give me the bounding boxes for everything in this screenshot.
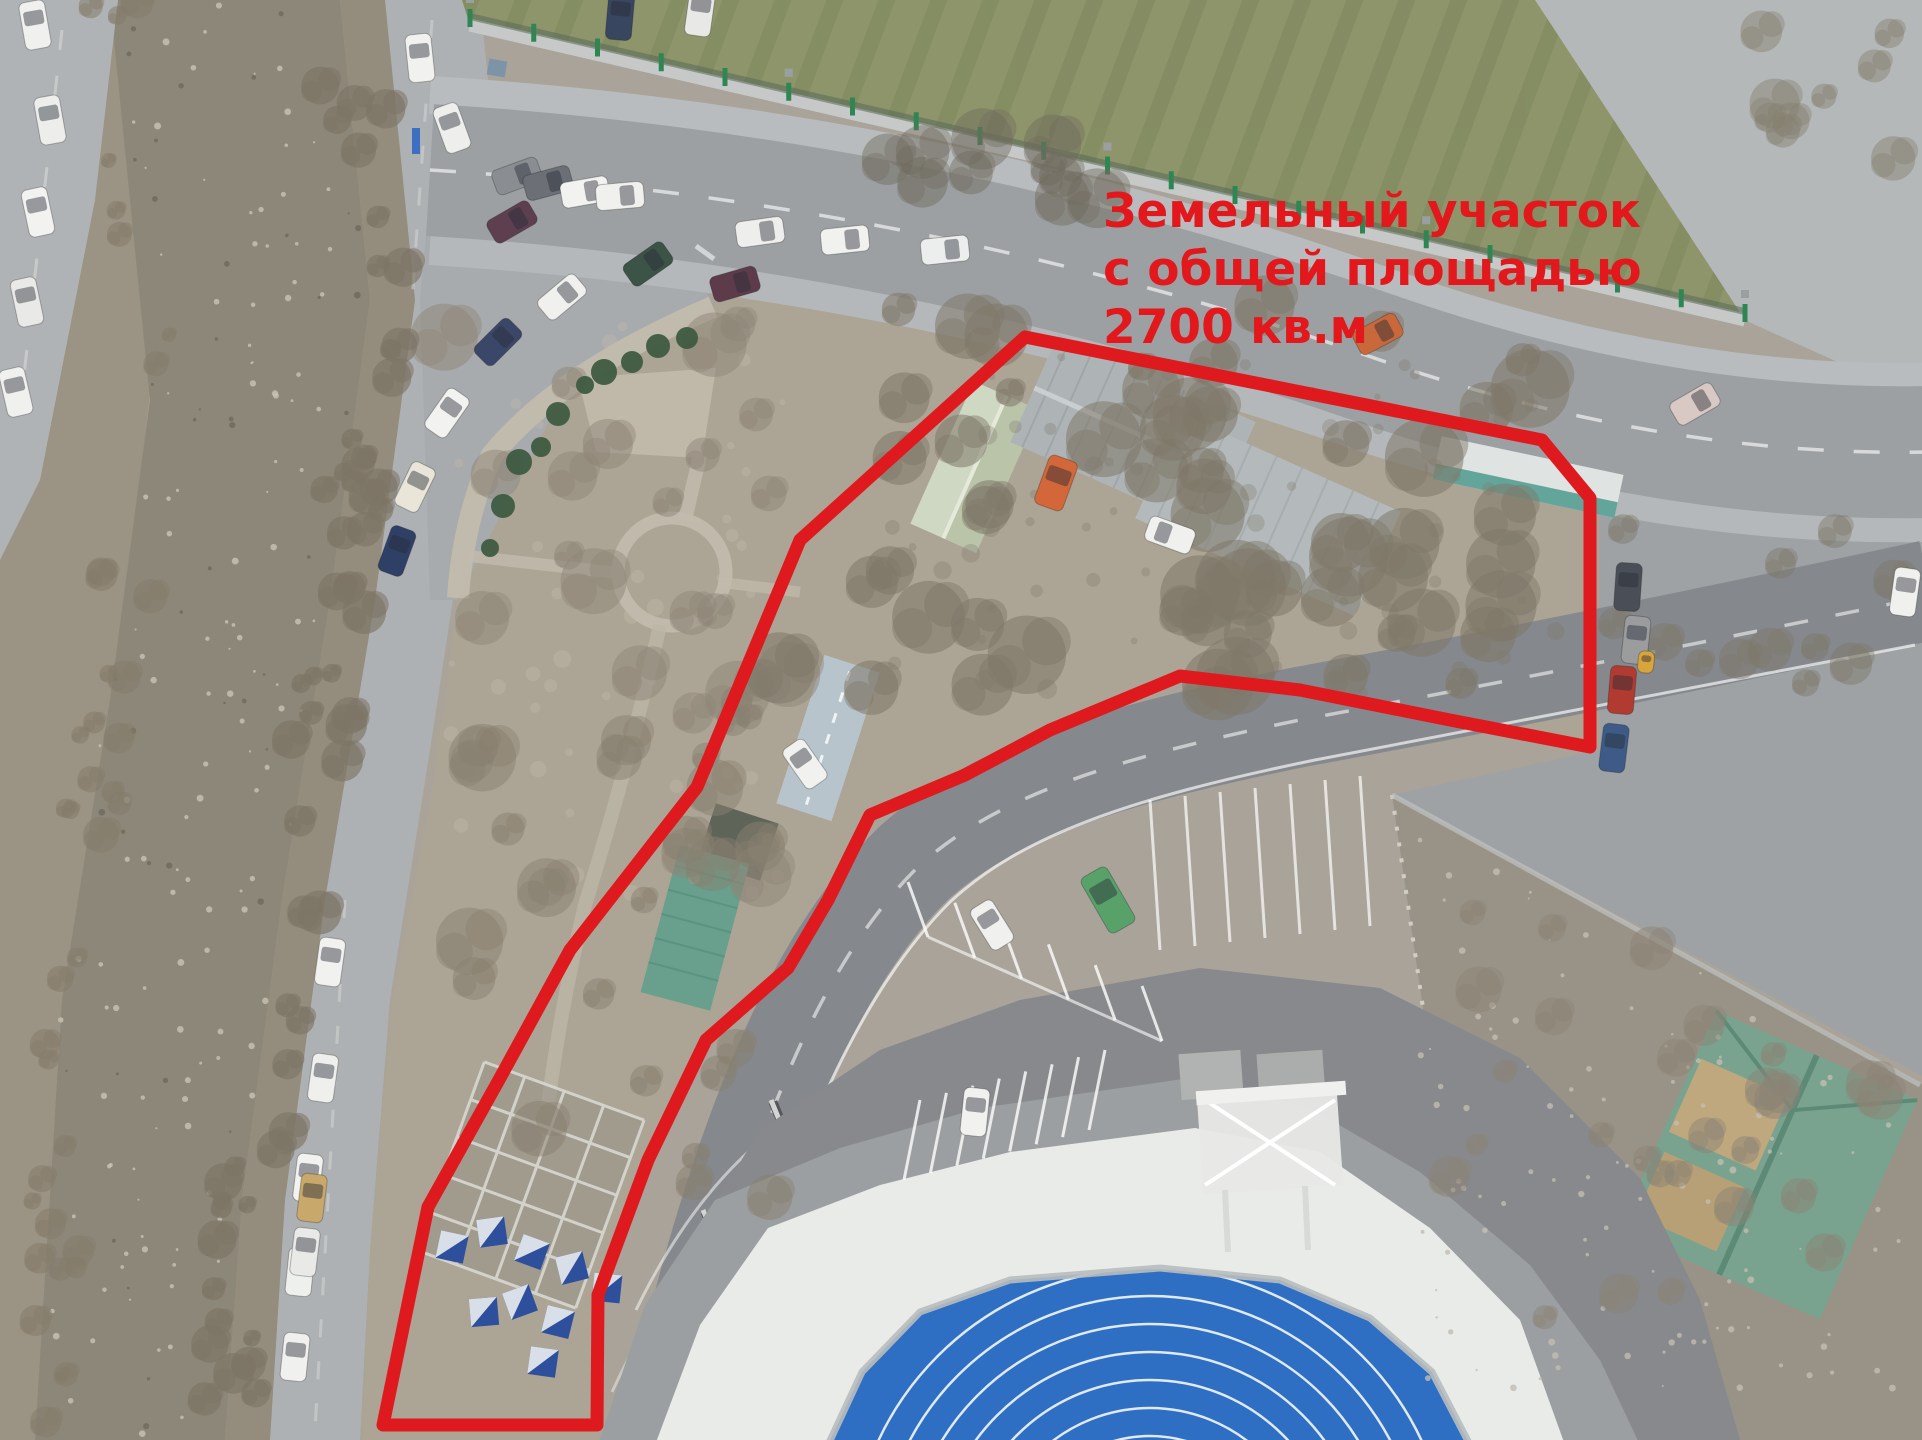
canal-rock (216, 2, 222, 8)
floodlight (1741, 290, 1749, 298)
dirt-speckle (1820, 1080, 1827, 1087)
dirt-speckle (1418, 1052, 1424, 1058)
dirt-speckle (1478, 1195, 1481, 1198)
tent (469, 1297, 499, 1327)
canal-rock (216, 1056, 220, 1060)
canal-rock (249, 1093, 255, 1099)
canal-rock (328, 247, 332, 251)
canal-rock (224, 261, 230, 267)
car (605, 0, 635, 41)
dirt-speckle (1701, 1103, 1706, 1108)
canal-rock (139, 1430, 146, 1437)
canal-rock (155, 1127, 157, 1129)
canal-rock (113, 1005, 119, 1011)
canal-rock (300, 468, 304, 472)
dirt-speckle (1570, 1114, 1574, 1118)
dirt-speckle (1827, 1333, 1830, 1336)
canal-rock (313, 619, 316, 622)
car-windows (302, 1182, 324, 1199)
canal-rock (182, 1096, 188, 1102)
canal-rock (68, 1398, 74, 1404)
blue-sign-pole (412, 128, 420, 154)
car-body (1613, 562, 1642, 612)
ground-mottle (510, 398, 521, 409)
ground-mottle (669, 780, 682, 793)
car-windows (295, 1236, 317, 1253)
canal-rock (180, 1416, 184, 1420)
canal-rock (276, 683, 279, 686)
dirt-speckle (1493, 868, 1500, 875)
canal-rock (251, 75, 256, 80)
ground-mottle (722, 514, 731, 523)
ground-mottle (1025, 517, 1034, 526)
canal-rock (147, 1377, 150, 1380)
dirt-speckle (1438, 1084, 1443, 1089)
dirt-speckle (1529, 891, 1532, 894)
canal-rock (199, 1062, 202, 1065)
dirt-speckle (1429, 1048, 1431, 1050)
ground-mottle (1082, 522, 1091, 531)
canal-rock (167, 531, 173, 537)
ground-mottle (1399, 359, 1411, 371)
dirt-speckle (1889, 1385, 1896, 1392)
ground-mottle (1410, 369, 1420, 379)
dirt-speckle (1749, 1016, 1756, 1023)
canal-rock (250, 380, 256, 386)
canal-rock (203, 179, 205, 181)
canal-rock (249, 750, 251, 752)
ground-mottle (530, 761, 546, 777)
canal-rock (240, 889, 243, 892)
canal-rock (170, 890, 175, 895)
canal-rock (265, 765, 270, 770)
dirt-speckle (1616, 1161, 1619, 1164)
tent (476, 1216, 508, 1248)
conifer-tree (676, 327, 698, 349)
canal-rock (170, 1284, 174, 1288)
dirt-speckle (1625, 1164, 1629, 1168)
conifer-tree (621, 351, 643, 373)
canal-rock (274, 460, 277, 463)
canal-rock (281, 192, 286, 197)
fence-post (659, 53, 664, 71)
dirt-speckle (1780, 1152, 1782, 1154)
ground-mottle (885, 520, 900, 535)
canal-rock (131, 26, 136, 31)
canal-rock (142, 1246, 148, 1252)
car (1613, 562, 1642, 612)
dirt-speckle (1727, 1279, 1731, 1283)
dirt-speckle (1418, 838, 1423, 843)
canal-rock (132, 120, 135, 123)
car (1607, 665, 1637, 715)
ground-mottle (631, 570, 644, 583)
floodlight (785, 69, 793, 77)
fence-post (1743, 304, 1748, 322)
dirt-speckle (1539, 1377, 1542, 1380)
dirt-speckle (1830, 1370, 1834, 1374)
dirt-speckle (1719, 1056, 1722, 1059)
canal-rock (223, 702, 226, 705)
conifer-tree (576, 376, 594, 394)
dirt-speckle (1799, 1248, 1801, 1250)
canal-rock (152, 196, 158, 202)
canal-rock (296, 372, 301, 377)
canal-rock (262, 998, 268, 1004)
canal-rock (229, 1131, 231, 1133)
ground-mottle (1287, 482, 1296, 491)
dirt-speckle (1561, 973, 1565, 977)
canal-rock (72, 1214, 76, 1218)
ground-mottle (491, 679, 506, 694)
ground-mottle (962, 544, 981, 563)
ground-mottle (717, 574, 725, 582)
car-windows (1604, 732, 1626, 749)
canal-rock (154, 122, 161, 129)
canal-rock (135, 629, 137, 631)
ground-mottle (746, 589, 755, 598)
dirt-speckle (1586, 1253, 1589, 1256)
canal-rock (285, 234, 289, 238)
canal-rock (237, 635, 243, 641)
canal-rock (265, 244, 268, 247)
kiosk-roof (487, 59, 508, 78)
dirt-speckle (1886, 1122, 1891, 1127)
canal-rock (58, 1017, 63, 1022)
tent (435, 1230, 468, 1263)
canal-rock (120, 1265, 124, 1269)
dirt-speckle (1747, 1326, 1750, 1329)
canal-rock (285, 295, 291, 301)
ground-mottle (624, 608, 640, 624)
dirt-speckle (1768, 1150, 1772, 1154)
canal-rock (258, 207, 263, 212)
dirt-speckle (1484, 1229, 1487, 1232)
ground-mottle (779, 399, 785, 405)
canal-rock (206, 906, 212, 912)
car-windows (944, 239, 960, 260)
ground-mottle (532, 541, 543, 552)
fence-post (468, 9, 473, 27)
dirt-speckle (1896, 1239, 1900, 1243)
car (1598, 723, 1630, 774)
canal-rock (266, 748, 269, 751)
canal-rock (348, 212, 350, 214)
canal-rock (320, 292, 325, 297)
dirt-speckle (1547, 1103, 1553, 1109)
canal-rock (277, 66, 283, 72)
dirt-speckle (1779, 1363, 1783, 1367)
canal-rock (176, 868, 179, 871)
ground-mottle (1131, 638, 1138, 645)
dirt-speckle (1448, 1329, 1453, 1334)
conifer-tree (546, 402, 570, 426)
annotation-line-1: Земельный участок (1103, 184, 1641, 239)
dirt-speckle (1702, 1340, 1706, 1344)
dirt-speckle (1583, 1238, 1587, 1242)
canal-rock (252, 241, 257, 246)
car-windows (1626, 625, 1647, 641)
dirt-speckle (1513, 1017, 1519, 1023)
car-windows (619, 185, 635, 206)
dirt-speckle (1851, 1151, 1854, 1154)
dirt-speckle (1630, 1006, 1634, 1010)
dirt-speckle (1638, 1197, 1642, 1201)
canal-rock (292, 280, 297, 285)
dirt-speckle (1807, 1372, 1813, 1378)
car-windows (1618, 572, 1639, 588)
car-body (405, 33, 436, 83)
floodlight (466, 0, 474, 3)
car-windows (313, 1062, 335, 1079)
canal-rock (248, 1043, 254, 1049)
canal-rock (225, 620, 228, 623)
dirt-speckle (1445, 1250, 1450, 1255)
dirt-speckle (1421, 1230, 1425, 1234)
dirt-speckle (1728, 1326, 1734, 1332)
canal-rock (125, 857, 130, 862)
canal-rock (166, 496, 171, 501)
car-windows (844, 229, 860, 250)
dirt-speckle (1528, 1169, 1533, 1174)
conifer-tree (591, 359, 617, 385)
dirt-speckle (1706, 1199, 1711, 1204)
dirt-speckle (1671, 1080, 1675, 1084)
canal-rock (232, 558, 239, 565)
ground-mottle (1009, 420, 1022, 433)
canal-rock (263, 673, 266, 676)
ground-mottle (1086, 573, 1100, 587)
dirt-speckle (1747, 1276, 1754, 1283)
canal-rock (143, 494, 148, 499)
dirt-speckle (1528, 898, 1530, 900)
dirt-speckle (1492, 1034, 1498, 1040)
dirt-speckle (1716, 1327, 1719, 1330)
canal-rock (127, 1287, 130, 1290)
canal-rock (107, 1164, 111, 1168)
canal-rock (199, 408, 201, 410)
canal-rock (250, 876, 255, 881)
canal-rock (65, 1070, 67, 1072)
dirt-speckle (1446, 872, 1453, 879)
canal-rock (295, 619, 301, 625)
canal-rock (150, 677, 156, 683)
canal-rock (167, 392, 169, 394)
canal-rock (204, 947, 209, 952)
canal-rock (141, 1235, 144, 1238)
dirt-speckle (1604, 1226, 1609, 1231)
dirt-speckle (1716, 1059, 1722, 1065)
dirt-speckle (1569, 1087, 1574, 1092)
canal-rock (318, 296, 321, 299)
canal-rock (203, 30, 207, 34)
dirt-speckle (1556, 1365, 1561, 1370)
canal-rock (168, 1344, 173, 1349)
ground-mottle (1110, 507, 1118, 515)
canal-rock (316, 407, 321, 412)
dirt-speckle (1624, 1353, 1631, 1360)
canal-rock (251, 303, 256, 308)
canal-rock (185, 1123, 192, 1130)
canal-rock (273, 393, 279, 399)
dirt-speckle (1552, 1178, 1556, 1182)
canal-rock (133, 158, 137, 162)
dirt-speckle (1737, 1385, 1743, 1391)
canal-rock (327, 187, 331, 191)
canal-rock (177, 959, 184, 966)
car-windows (610, 1, 631, 17)
canal-rock (140, 654, 145, 659)
canal-rock (206, 691, 210, 695)
conifer-tree (646, 334, 670, 358)
conifer-tree (531, 437, 551, 457)
dirt-speckle (1874, 1368, 1880, 1374)
dirt-speckle (1729, 1167, 1736, 1174)
ground-mottle (454, 818, 469, 833)
canal-rock (143, 986, 147, 990)
canal-rock (205, 637, 209, 641)
canal-rock (144, 167, 146, 169)
canal-rock (133, 1167, 136, 1170)
ground-mottle (741, 467, 750, 476)
car-windows (965, 1097, 986, 1113)
dirt-speckle (1510, 1384, 1517, 1391)
canal-rock (127, 52, 132, 57)
car-windows (285, 1342, 306, 1358)
canal-rock (143, 1423, 149, 1429)
fence-post (1679, 289, 1684, 307)
ground-mottle (1057, 353, 1065, 361)
ground-mottle (449, 660, 455, 666)
canal-rock (185, 877, 190, 882)
fence-post (786, 83, 791, 101)
canal-rock (129, 1299, 131, 1301)
canal-rock (124, 1251, 129, 1256)
dirt-speckle (1662, 1351, 1665, 1354)
canal-rock (154, 139, 158, 143)
dirt-speckle (1662, 1385, 1664, 1387)
canal-rock (105, 1006, 109, 1010)
canal-rock (254, 788, 259, 793)
canal-rock (151, 383, 154, 386)
ground-mottle (1141, 567, 1150, 576)
canal-rock (163, 1078, 168, 1083)
canal-rock (176, 489, 179, 492)
dirt-speckle (1744, 1228, 1749, 1233)
canal-rock (229, 417, 234, 422)
canal-rock (229, 422, 235, 428)
car-windows (320, 946, 342, 963)
canal-rock (102, 1287, 106, 1291)
dirt-speckle (1501, 1201, 1506, 1206)
canal-rock (116, 1072, 119, 1075)
canal-rock (90, 1338, 95, 1343)
dirt-speckle (1671, 1033, 1673, 1035)
canal-rock (218, 1029, 224, 1035)
aerial-photo: Земельный участок с общей площадью 2700 … (0, 0, 1922, 1440)
ground-mottle (602, 334, 618, 350)
canal-rock (307, 555, 311, 559)
dirt-speckle (1668, 1339, 1674, 1345)
canal-rock (228, 648, 230, 650)
dirt-speckle (1674, 1121, 1679, 1126)
dirt-speckle (1435, 1316, 1437, 1318)
dirt-speckle (1435, 1289, 1437, 1291)
dirt-speckle (1434, 1102, 1440, 1108)
ground-mottle (727, 442, 734, 449)
canal-rock (254, 73, 256, 75)
dirt-speckle (1475, 1014, 1481, 1020)
fence-post (595, 39, 600, 57)
dirt-speckle (1704, 1302, 1708, 1306)
annotation-line-3: 2700 кв.м (1103, 300, 1368, 355)
ground-mottle (1247, 514, 1265, 532)
ground-mottle (530, 703, 540, 713)
car (595, 181, 645, 211)
ground-mottle (455, 459, 464, 468)
canal-rock (184, 815, 188, 819)
ground-mottle (1044, 423, 1056, 435)
canal-rock (251, 361, 253, 363)
canal-rock (270, 544, 277, 551)
ground-mottle (647, 599, 664, 616)
conifer-tree (491, 494, 515, 518)
canal-rock (53, 1333, 60, 1340)
canal-rock (279, 11, 284, 16)
dirt-speckle (1586, 1175, 1590, 1179)
dirt-speckle (1578, 1191, 1584, 1197)
canal-rock (98, 809, 105, 816)
canal-rock (157, 1348, 161, 1352)
ground-mottle (1030, 585, 1043, 598)
ground-mottle (526, 667, 541, 682)
ground-mottle (535, 420, 544, 429)
canal-rock (248, 344, 251, 347)
canal-rock (185, 1077, 191, 1083)
canal-rock (355, 225, 361, 231)
dirt-speckle (1677, 1333, 1682, 1338)
ground-mottle (1429, 575, 1441, 587)
canal-rock (242, 699, 247, 704)
floodlight (1104, 143, 1112, 151)
car-windows (1612, 675, 1633, 691)
dirt-speckle (1476, 1369, 1478, 1371)
aerial-scene: Земельный участок с общей площадью 2700 … (0, 0, 1922, 1440)
car (1637, 650, 1655, 674)
canal-rock (203, 761, 208, 766)
annotation-line-2: с общей площадью (1103, 242, 1642, 297)
car-windows (1895, 576, 1917, 593)
fence-post (723, 68, 728, 86)
ground-mottle (737, 541, 747, 551)
canal-rock (354, 292, 361, 299)
dirt-speckle (1691, 1339, 1696, 1344)
canal-rock (232, 623, 236, 627)
car (920, 235, 970, 266)
dirt-speckle (1873, 1248, 1877, 1252)
canal-rock (193, 418, 197, 422)
dirt-speckle (1770, 1137, 1774, 1141)
dirt-speckle (1699, 972, 1702, 975)
ground-mottle (565, 809, 574, 818)
tent (527, 1346, 559, 1378)
conifer-tree (506, 449, 532, 475)
dirt-speckle (1526, 1065, 1529, 1068)
canal-rock (227, 690, 233, 696)
canal-rock (313, 141, 315, 143)
canal-rock (137, 1199, 139, 1201)
canal-rock (291, 399, 294, 402)
